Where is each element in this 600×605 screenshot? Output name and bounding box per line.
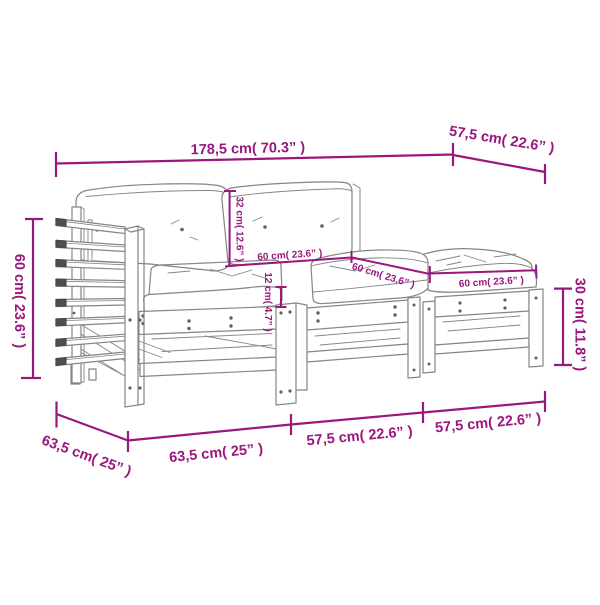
svg-text:30 cm( 11.8” ): 30 cm( 11.8” ) (572, 278, 588, 372)
svg-text:178,5 cm( 70.3” ): 178,5 cm( 70.3” ) (191, 140, 306, 159)
svg-text:60 cm( 23.6” ): 60 cm( 23.6” ) (11, 254, 27, 348)
svg-text:12 cm( 4.7” ): 12 cm( 4.7” ) (262, 272, 273, 331)
svg-text:32 cm( 12.6” ): 32 cm( 12.6” ) (233, 196, 244, 261)
